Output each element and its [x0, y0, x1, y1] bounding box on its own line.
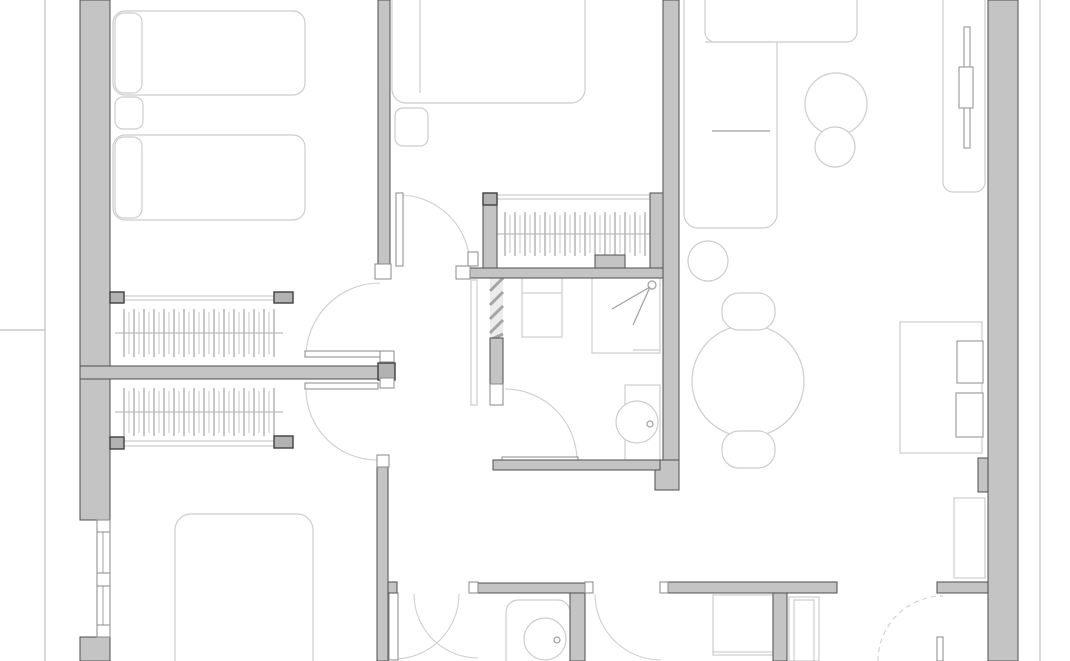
jamb-hall-door — [468, 252, 478, 266]
shower-bathroom1 — [592, 278, 660, 353]
pillow-bed-single-top — [115, 13, 142, 93]
desk-chair — [956, 393, 983, 437]
dining-chair-north — [722, 293, 775, 330]
jamb-bathroom1-north-end — [456, 266, 470, 279]
doorframe-bottom-mid-inner — [794, 600, 814, 661]
door-bathroom1-swing-arc — [505, 389, 577, 461]
wall-interior-a — [378, 0, 390, 265]
cap-closet3-corner — [483, 193, 497, 205]
cabinet-bottom-mid — [713, 595, 773, 655]
wall-spine-east — [663, 0, 679, 463]
cap-closet2-right — [274, 436, 293, 448]
wall-closet-divider — [80, 366, 390, 379]
door-room-bottom-mid-swing-arc — [595, 594, 661, 660]
side-table — [688, 241, 728, 281]
door-hall-bottom-swing-arc — [394, 594, 459, 659]
dining-table — [692, 325, 804, 437]
door-bottom-right-leaf — [937, 637, 943, 661]
nightstand-bedroom2 — [395, 108, 428, 146]
door-bathroom2-swing-arc — [414, 594, 478, 658]
door-bedroom1-swing-arc — [306, 283, 380, 357]
door-bottom-right-swing-arc — [878, 596, 943, 661]
door-hall-top-leaf — [396, 193, 403, 266]
window-left-bedroom3-mullion — [97, 520, 110, 532]
wall-interior-a-lower — [377, 458, 388, 661]
door-hall-top-swing-arc — [399, 195, 470, 266]
wall-bathroom1-south — [493, 460, 660, 470]
wall-bathroom2-north — [478, 583, 585, 593]
door-bedroom3-swing-arc — [306, 389, 377, 460]
wall-exterior-right — [988, 0, 1018, 661]
jamb-bathroom1-west — [490, 384, 503, 405]
toilet-flush-bathroom1 — [647, 421, 653, 427]
dining-chair-south — [722, 431, 775, 468]
door-bedroom1-leaf — [305, 351, 380, 357]
wall-bottom-east-wing — [668, 582, 837, 593]
wall-stub-hall-bottom — [388, 582, 397, 593]
pocket-leaf-bathroom1 — [471, 280, 477, 405]
window-left-bedroom3-mullion — [97, 573, 110, 586]
floor-plan-page — [0, 0, 1070, 661]
door-bedroom3-leaf — [305, 383, 378, 389]
jamb-bathroom2-west — [469, 582, 478, 593]
jamb-wall-a-lower-top — [377, 455, 389, 467]
coffee-table-small — [815, 127, 855, 167]
wall-pilaster-right — [978, 458, 988, 492]
nightstand-bedroom1 — [115, 97, 143, 129]
wall-pier-closet3 — [595, 255, 625, 268]
wall-exterior-left-upper — [80, 0, 110, 520]
jamb-bathroom2-east — [585, 582, 593, 593]
wall-bathroom1-west-solid — [490, 338, 503, 385]
wall-bathroom1-north — [470, 268, 672, 278]
wall-closet3-west — [483, 195, 497, 268]
coffee-table-large — [805, 73, 867, 135]
bed-double-bedroom2 — [392, 0, 585, 103]
wall-bathroom2-east — [570, 593, 585, 661]
desk-monitor — [957, 341, 983, 383]
cap-closet1-left — [110, 292, 124, 303]
cap-wall-b-end — [378, 363, 395, 380]
wall-exterior-left-lower — [80, 637, 110, 661]
pillow-bed-single-bottom — [115, 137, 142, 218]
cabinet-bottom-right — [954, 498, 985, 578]
vanity-bathroom1 — [522, 278, 562, 337]
wall-bottom-vertical — [773, 593, 787, 661]
jamb-wall-b-upper — [380, 351, 394, 362]
cap-closet2-left — [110, 437, 124, 449]
jamb-wall-b-lower — [380, 378, 394, 388]
sofa-chaise — [705, 0, 857, 42]
cap-closet1-right — [274, 292, 293, 303]
window-left-bedroom3-mullion — [97, 625, 110, 637]
door-hall-bottom-leaf — [389, 593, 398, 660]
bed-bedroom3 — [175, 514, 313, 661]
floor-plan-canvas — [0, 0, 1070, 661]
toilet-flush-bathroom2 — [554, 637, 560, 643]
tv-mount — [959, 67, 973, 108]
jamb-wall-a-bottom — [375, 264, 391, 279]
jamb-bottom-east-wing — [660, 582, 668, 593]
wall-bottom-right-stub — [937, 582, 988, 593]
